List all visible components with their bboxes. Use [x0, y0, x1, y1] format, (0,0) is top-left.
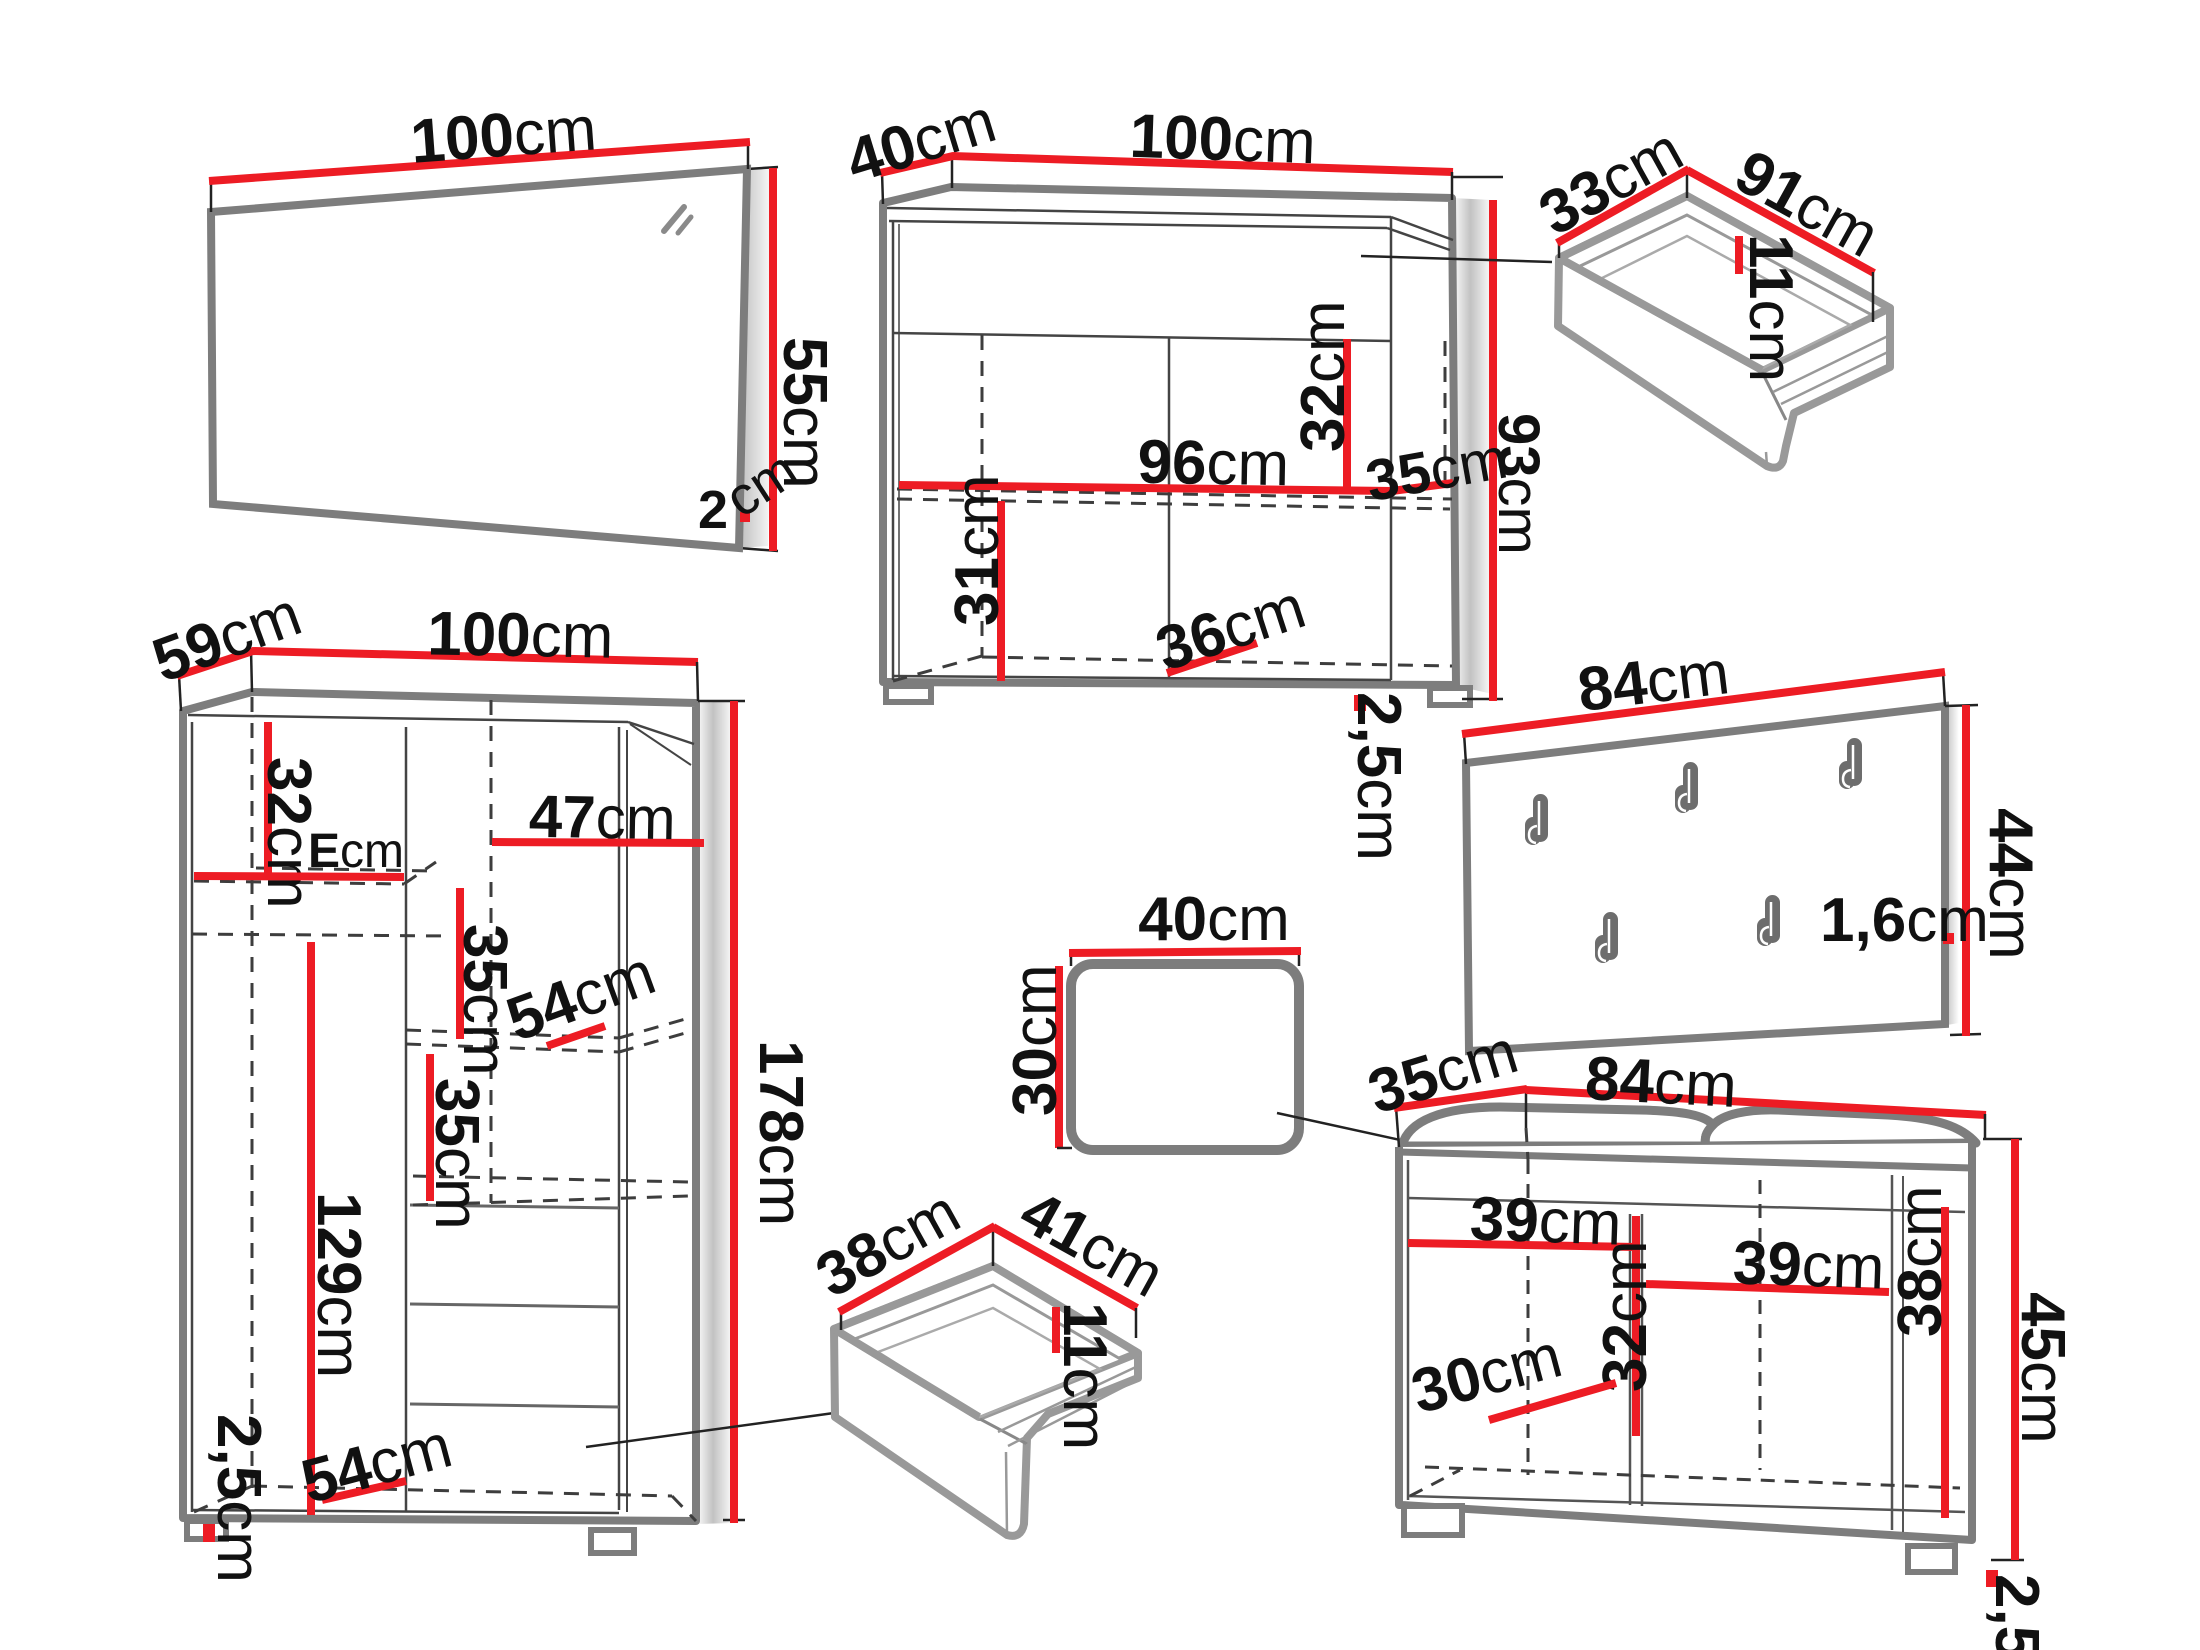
svg-text:35cm: 35cm: [422, 1078, 491, 1230]
svg-text:31cm: 31cm: [943, 474, 1012, 626]
svg-text:40cm: 40cm: [1138, 885, 1290, 954]
svg-text:2,5cm: 2,5cm: [1982, 1574, 2051, 1650]
svg-text:1,6cm: 1,6cm: [1820, 886, 1989, 955]
svg-text:2,5cm: 2,5cm: [1344, 692, 1413, 861]
svg-text:96cm: 96cm: [1137, 428, 1290, 500]
svg-text:32cm: 32cm: [1289, 300, 1358, 452]
svg-text:38cm: 38cm: [1886, 1185, 1955, 1337]
svg-text:178cm: 178cm: [746, 1040, 815, 1226]
svg-text:30cm: 30cm: [1001, 964, 1070, 1116]
svg-text:39cm: 39cm: [1732, 1228, 1886, 1302]
svg-text:32cm: 32cm: [1591, 1240, 1660, 1392]
svg-text:45cm: 45cm: [2008, 1292, 2077, 1444]
svg-text:11cm: 11cm: [1736, 234, 1805, 382]
svg-text:100cm: 100cm: [408, 94, 599, 176]
svg-text:Ecm: Ecm: [308, 825, 404, 878]
svg-text:84cm: 84cm: [1584, 1044, 1739, 1121]
svg-text:100cm: 100cm: [1129, 102, 1317, 177]
svg-text:11cm: 11cm: [1050, 1302, 1119, 1450]
svg-text:47cm: 47cm: [528, 783, 676, 853]
svg-text:100cm: 100cm: [427, 599, 614, 671]
svg-text:129cm: 129cm: [304, 1192, 373, 1378]
svg-text:2,5cm: 2,5cm: [204, 1414, 273, 1583]
